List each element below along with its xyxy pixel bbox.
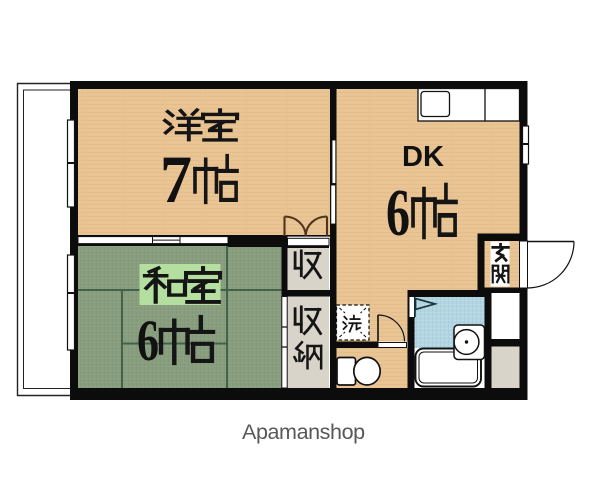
svg-text:7: 7	[160, 141, 192, 217]
svg-text:DK: DK	[402, 141, 444, 173]
svg-text:6: 6	[386, 176, 410, 250]
svg-text:Apamanshop: Apamanshop	[242, 420, 365, 444]
svg-text:6: 6	[137, 308, 159, 373]
